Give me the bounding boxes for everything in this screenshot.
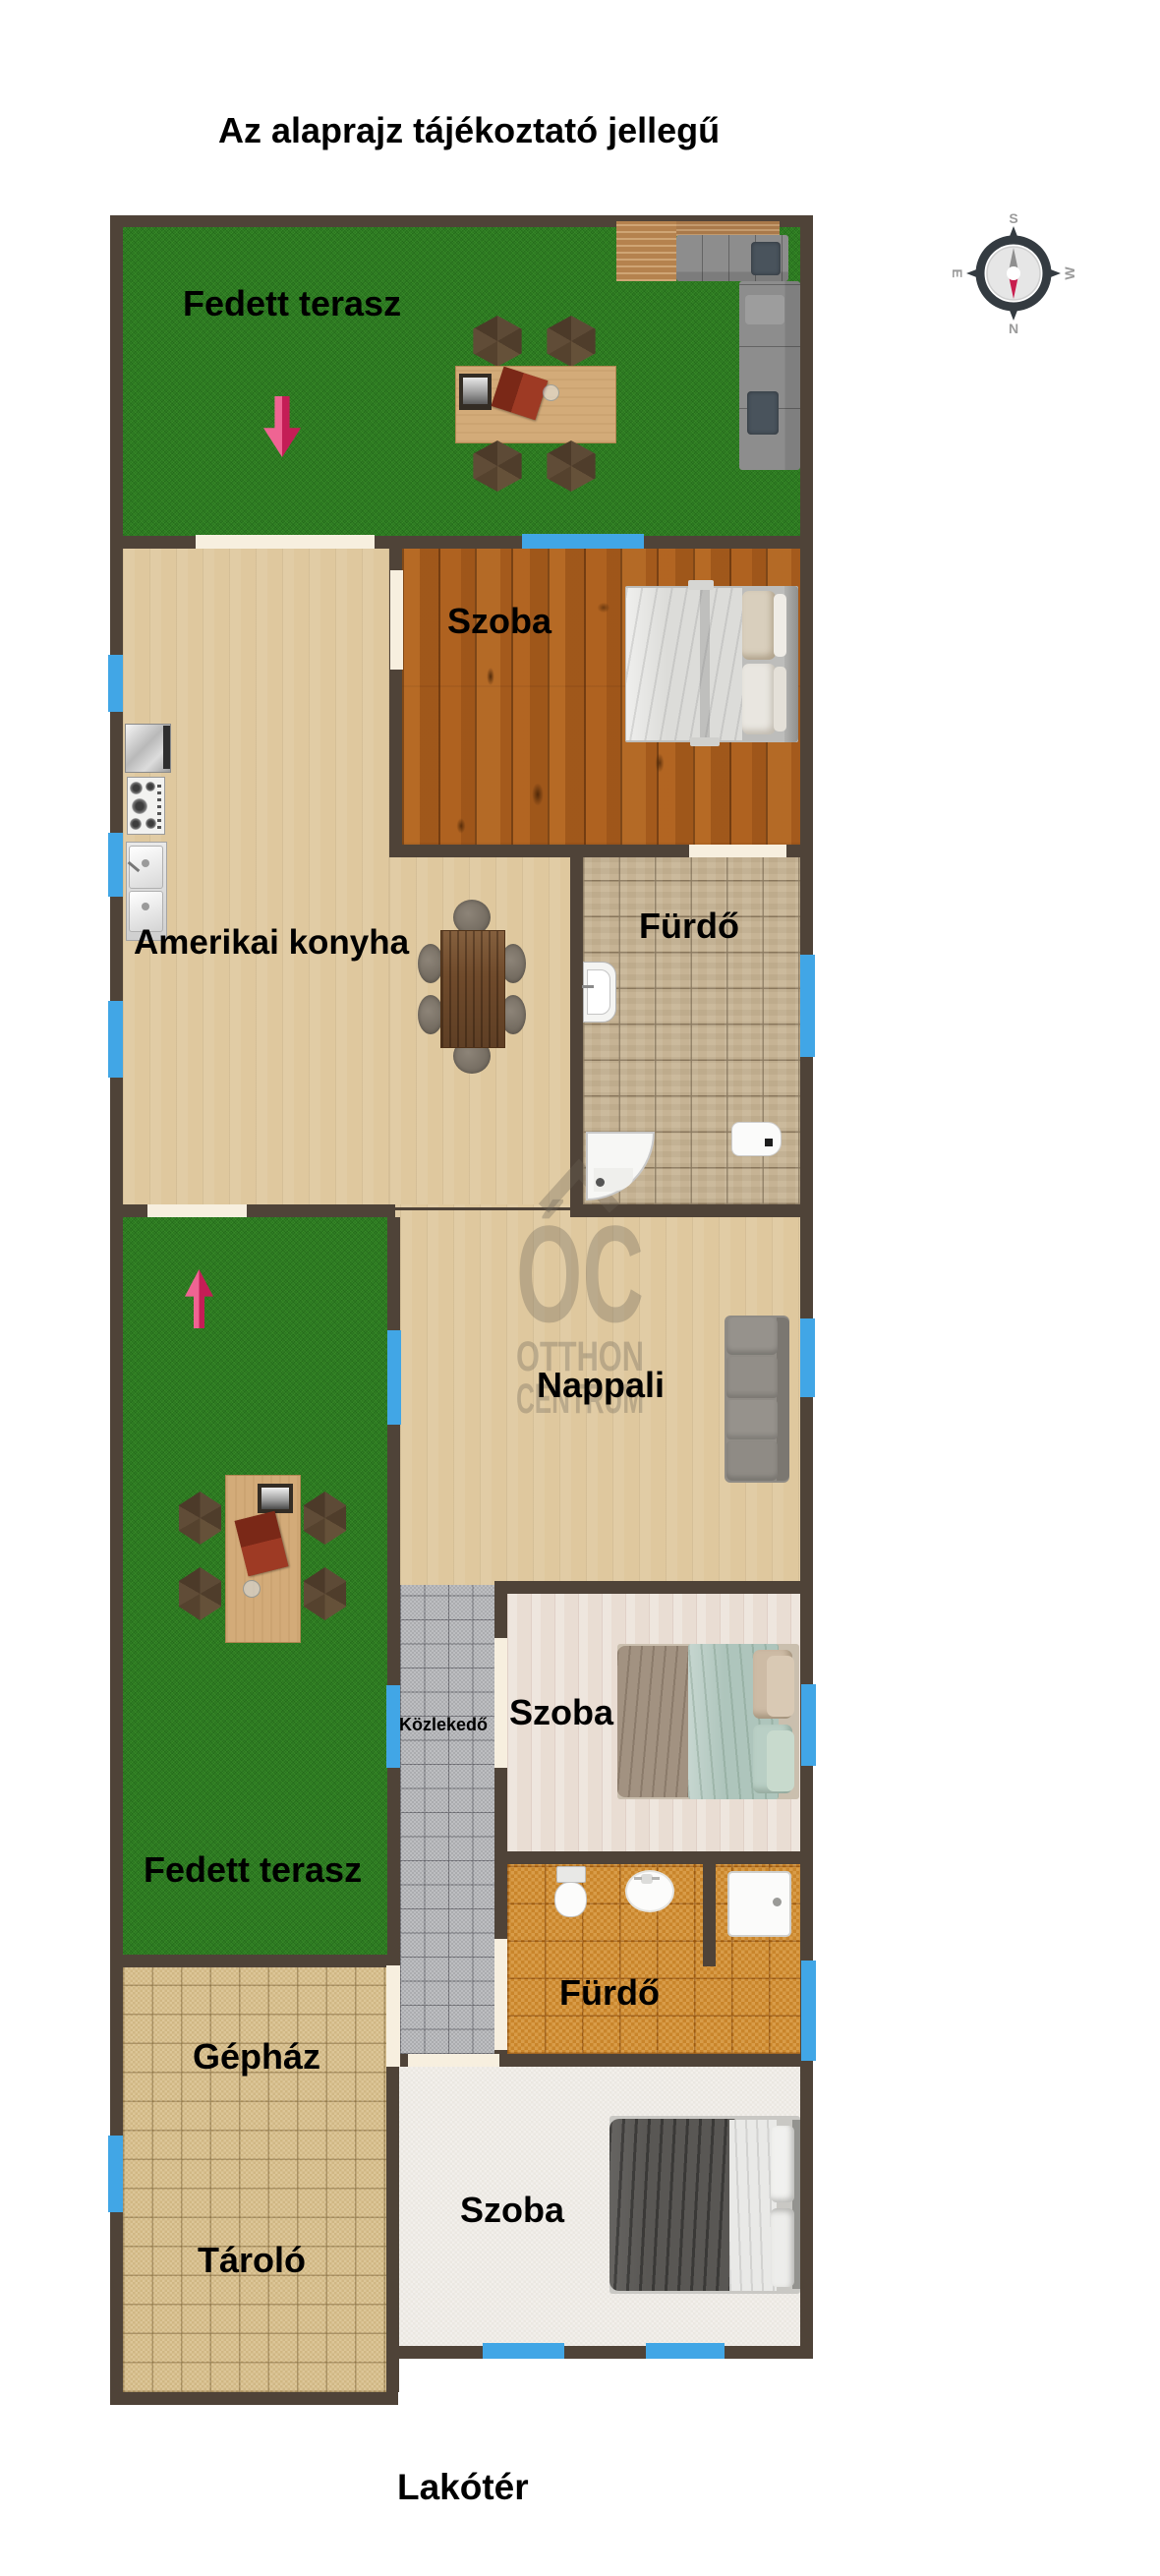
svg-text:ÓC: ÓC: [516, 1197, 644, 1351]
svg-text:E: E: [950, 268, 965, 277]
svg-text:N: N: [1009, 321, 1018, 336]
svg-text:S: S: [1009, 210, 1017, 226]
svg-text:W: W: [1062, 266, 1077, 280]
